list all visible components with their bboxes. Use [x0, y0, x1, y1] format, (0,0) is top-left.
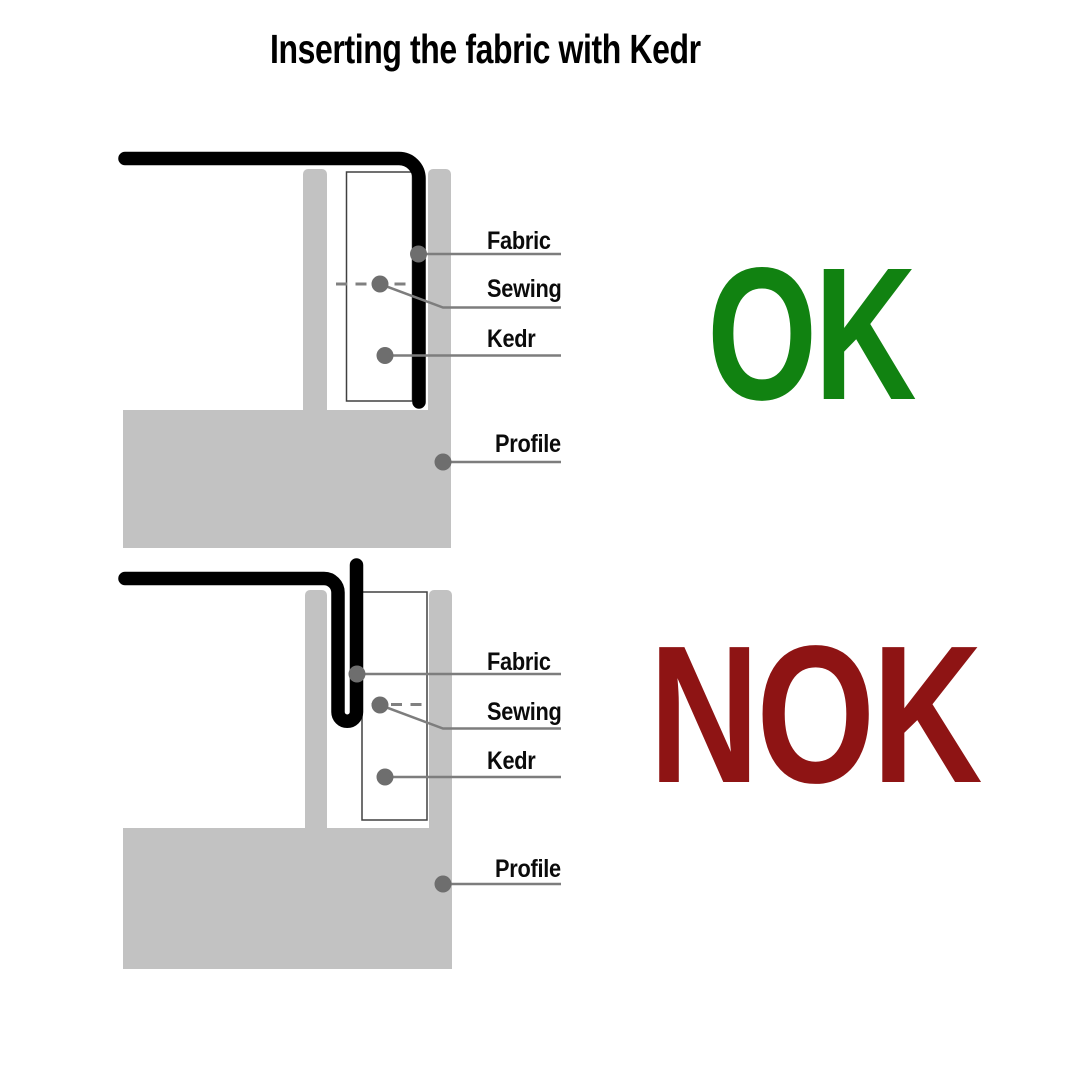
profile-base [123, 828, 452, 969]
diagram-nok: Fabric Sewing Kedr Profile NOK [0, 545, 1080, 1000]
profile-base [123, 410, 451, 548]
kedr-infographic: Inserting the fabric with Kedr Fabric Se… [0, 0, 1080, 1080]
profile-post-left [305, 590, 327, 835]
page-title: Inserting the fabric with Kedr [270, 29, 701, 70]
label-profile: Profile [495, 857, 561, 882]
status-nok-text: NOK [649, 617, 979, 813]
status-ok-text: OK [707, 240, 914, 429]
label-profile: Profile [495, 432, 561, 457]
leader-dot-profile [435, 454, 452, 471]
leader-dot-kedr [377, 769, 394, 786]
leader-dot-sewing [372, 697, 389, 714]
diagram-ok-drawing [0, 140, 1080, 560]
leader-dot-sewing [372, 276, 389, 293]
diagram-ok: Fabric Sewing Kedr Profile OK [0, 140, 1080, 560]
label-fabric: Fabric [487, 650, 551, 675]
label-sewing: Sewing [487, 277, 562, 302]
leader-dot-profile [435, 876, 452, 893]
leader-dot-kedr [377, 347, 394, 364]
leader-dot-fabric [349, 666, 366, 683]
profile-post-left [303, 169, 327, 415]
label-fabric: Fabric [487, 229, 551, 254]
leader-dot-fabric [410, 246, 427, 263]
label-kedr: Kedr [487, 749, 536, 774]
label-kedr: Kedr [487, 327, 536, 352]
label-sewing: Sewing [487, 700, 562, 725]
